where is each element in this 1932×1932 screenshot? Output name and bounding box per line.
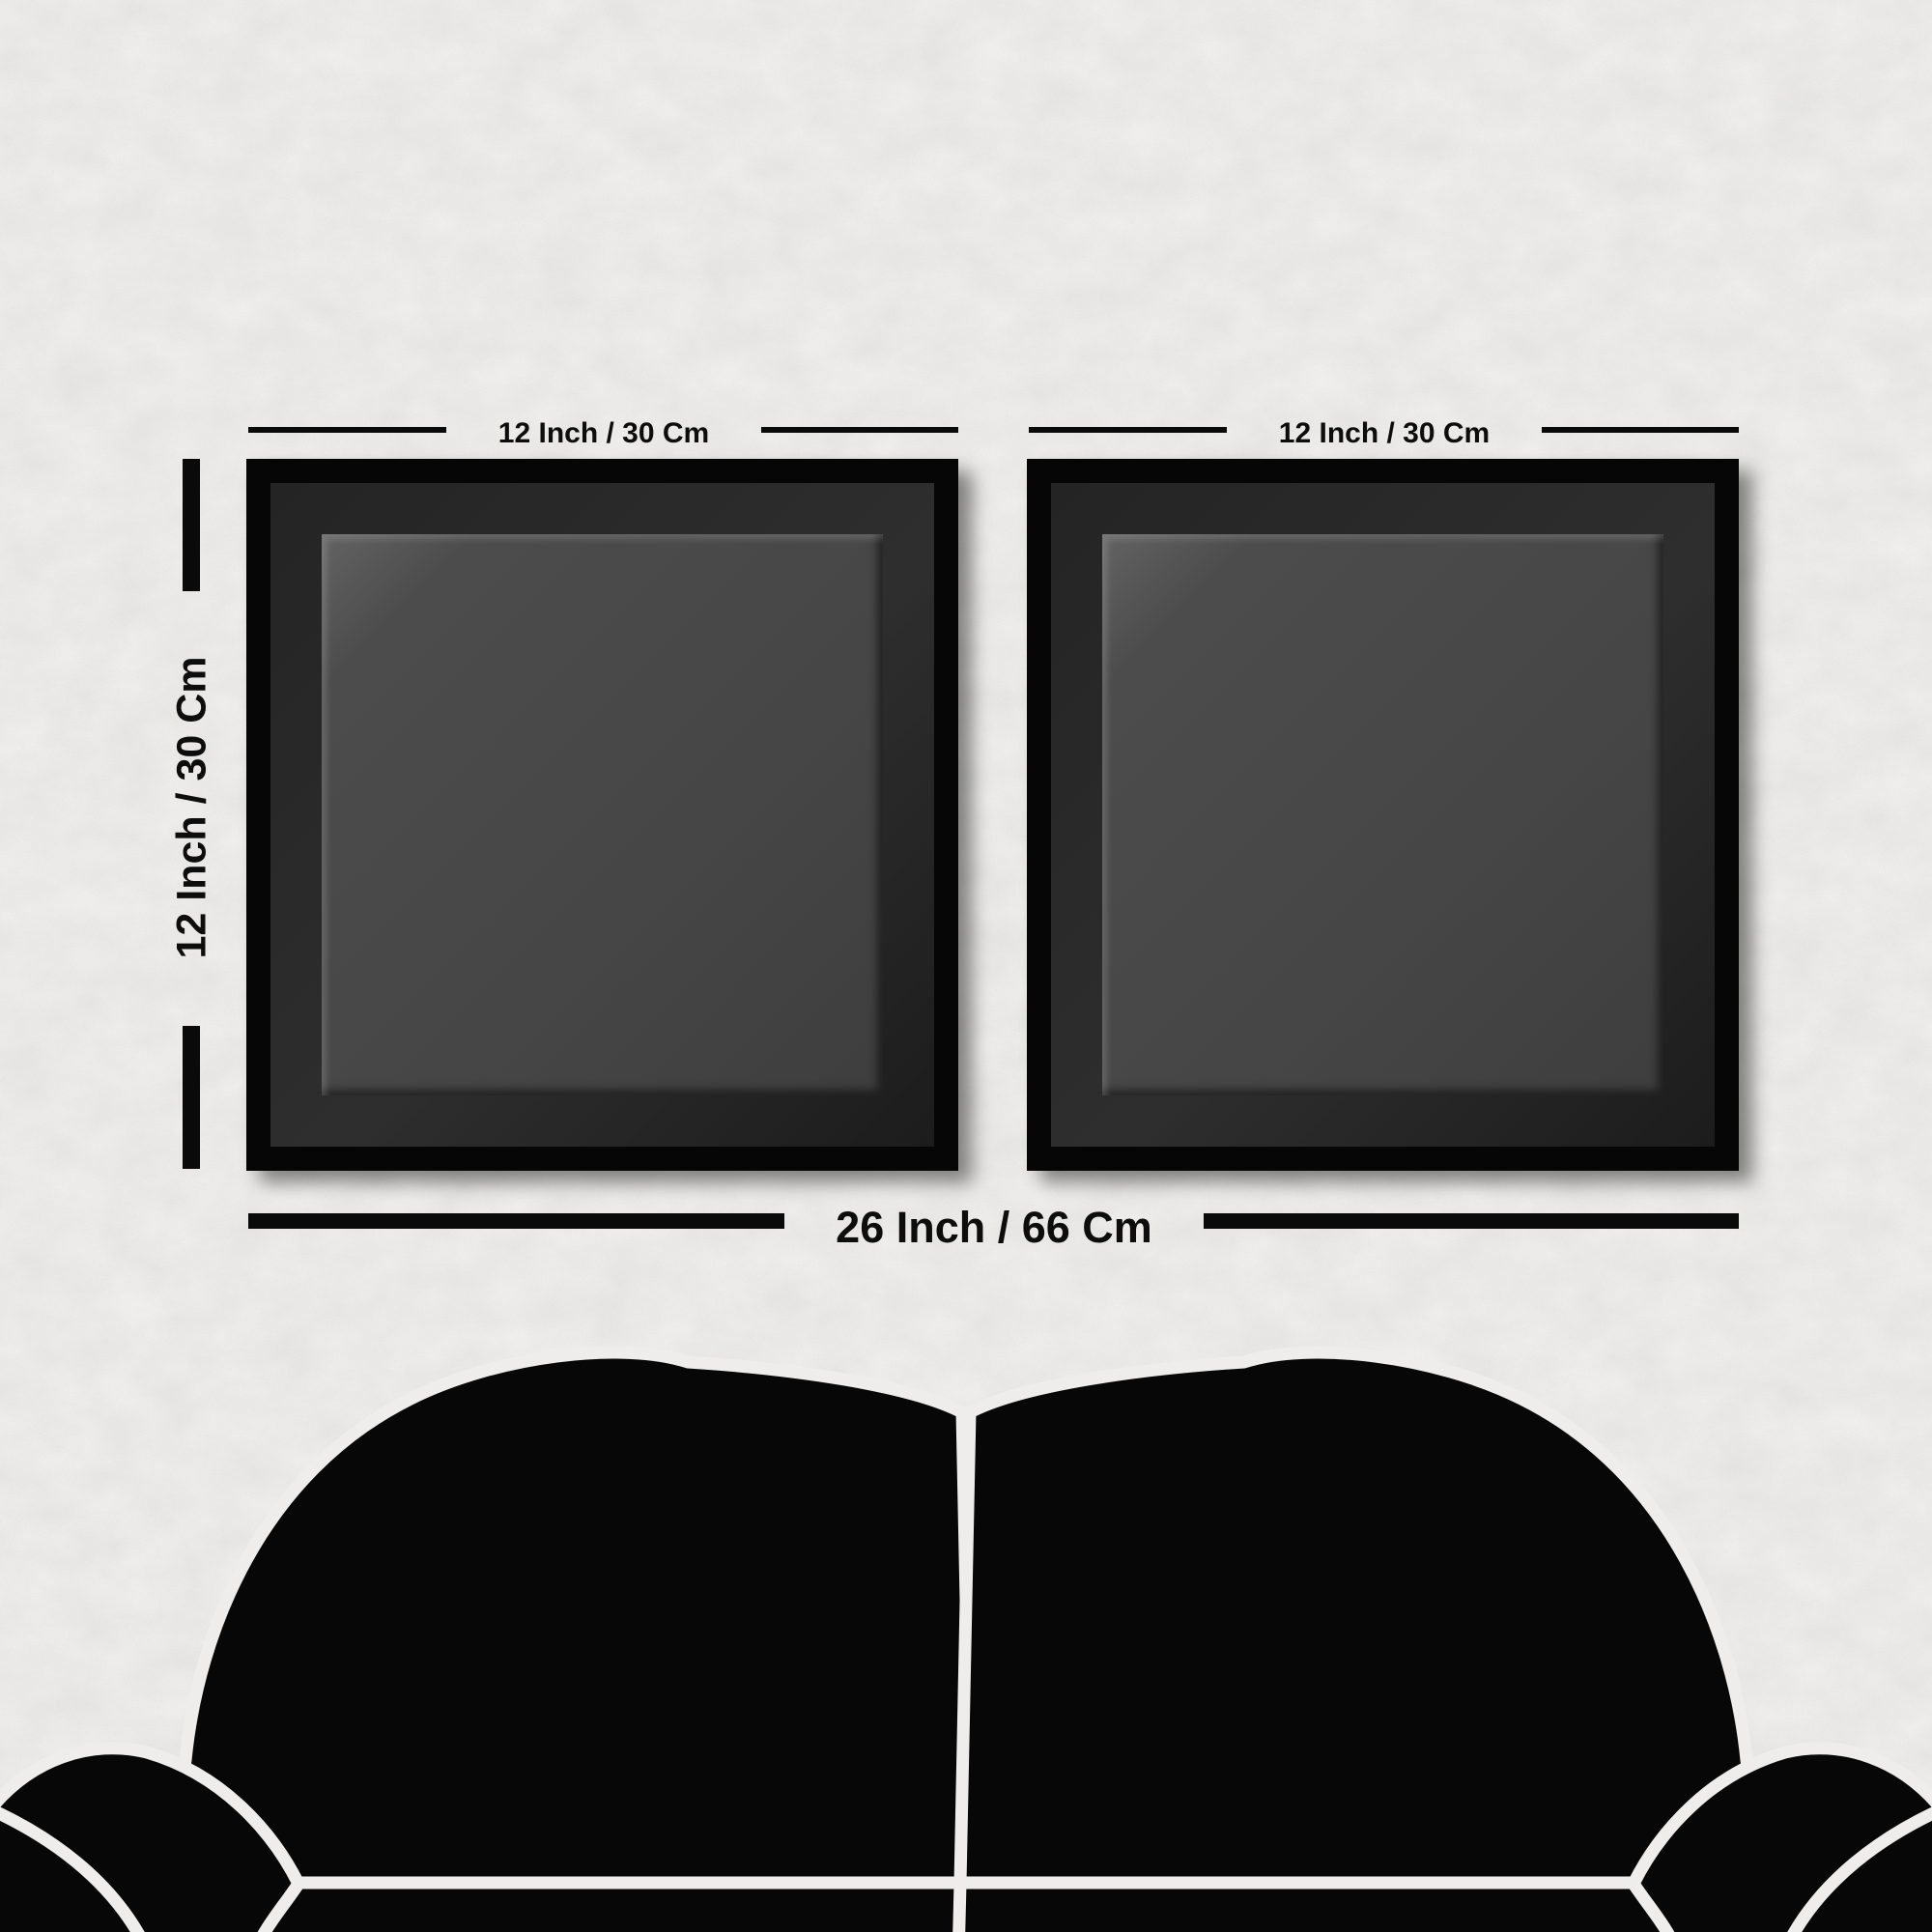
total-width-label: 26 Inch / 66 Cm — [784, 1205, 1204, 1251]
frame-right-mat — [1051, 483, 1715, 1147]
sofa-silhouette — [0, 1333, 1932, 1932]
frame-right — [1027, 459, 1739, 1171]
dimension-line — [1029, 427, 1227, 433]
dimension-line — [183, 459, 200, 591]
dimension-line — [183, 1026, 200, 1169]
dimension-line — [1204, 1213, 1739, 1229]
dimension-line — [1542, 427, 1739, 433]
dimension-line — [248, 1213, 784, 1229]
size-chart-scene: 12 Inch / 30 Cm 12 Inch / 30 Cm 12 Inch … — [0, 0, 1932, 1932]
frame-left-width-label: 12 Inch / 30 Cm — [446, 414, 761, 453]
frame-left — [246, 459, 958, 1171]
dimension-line — [248, 427, 446, 433]
frame-height-label: 12 Inch / 30 Cm — [169, 656, 216, 958]
frame-left-mat — [270, 483, 934, 1147]
sofa-back-cushion-right — [958, 1352, 1760, 1932]
frame-right-canvas — [1102, 534, 1663, 1095]
dimension-line — [761, 427, 958, 433]
sofa-back-cushion-left — [172, 1352, 974, 1932]
frame-right-width-label: 12 Inch / 30 Cm — [1227, 414, 1542, 453]
frame-left-canvas — [322, 534, 883, 1095]
